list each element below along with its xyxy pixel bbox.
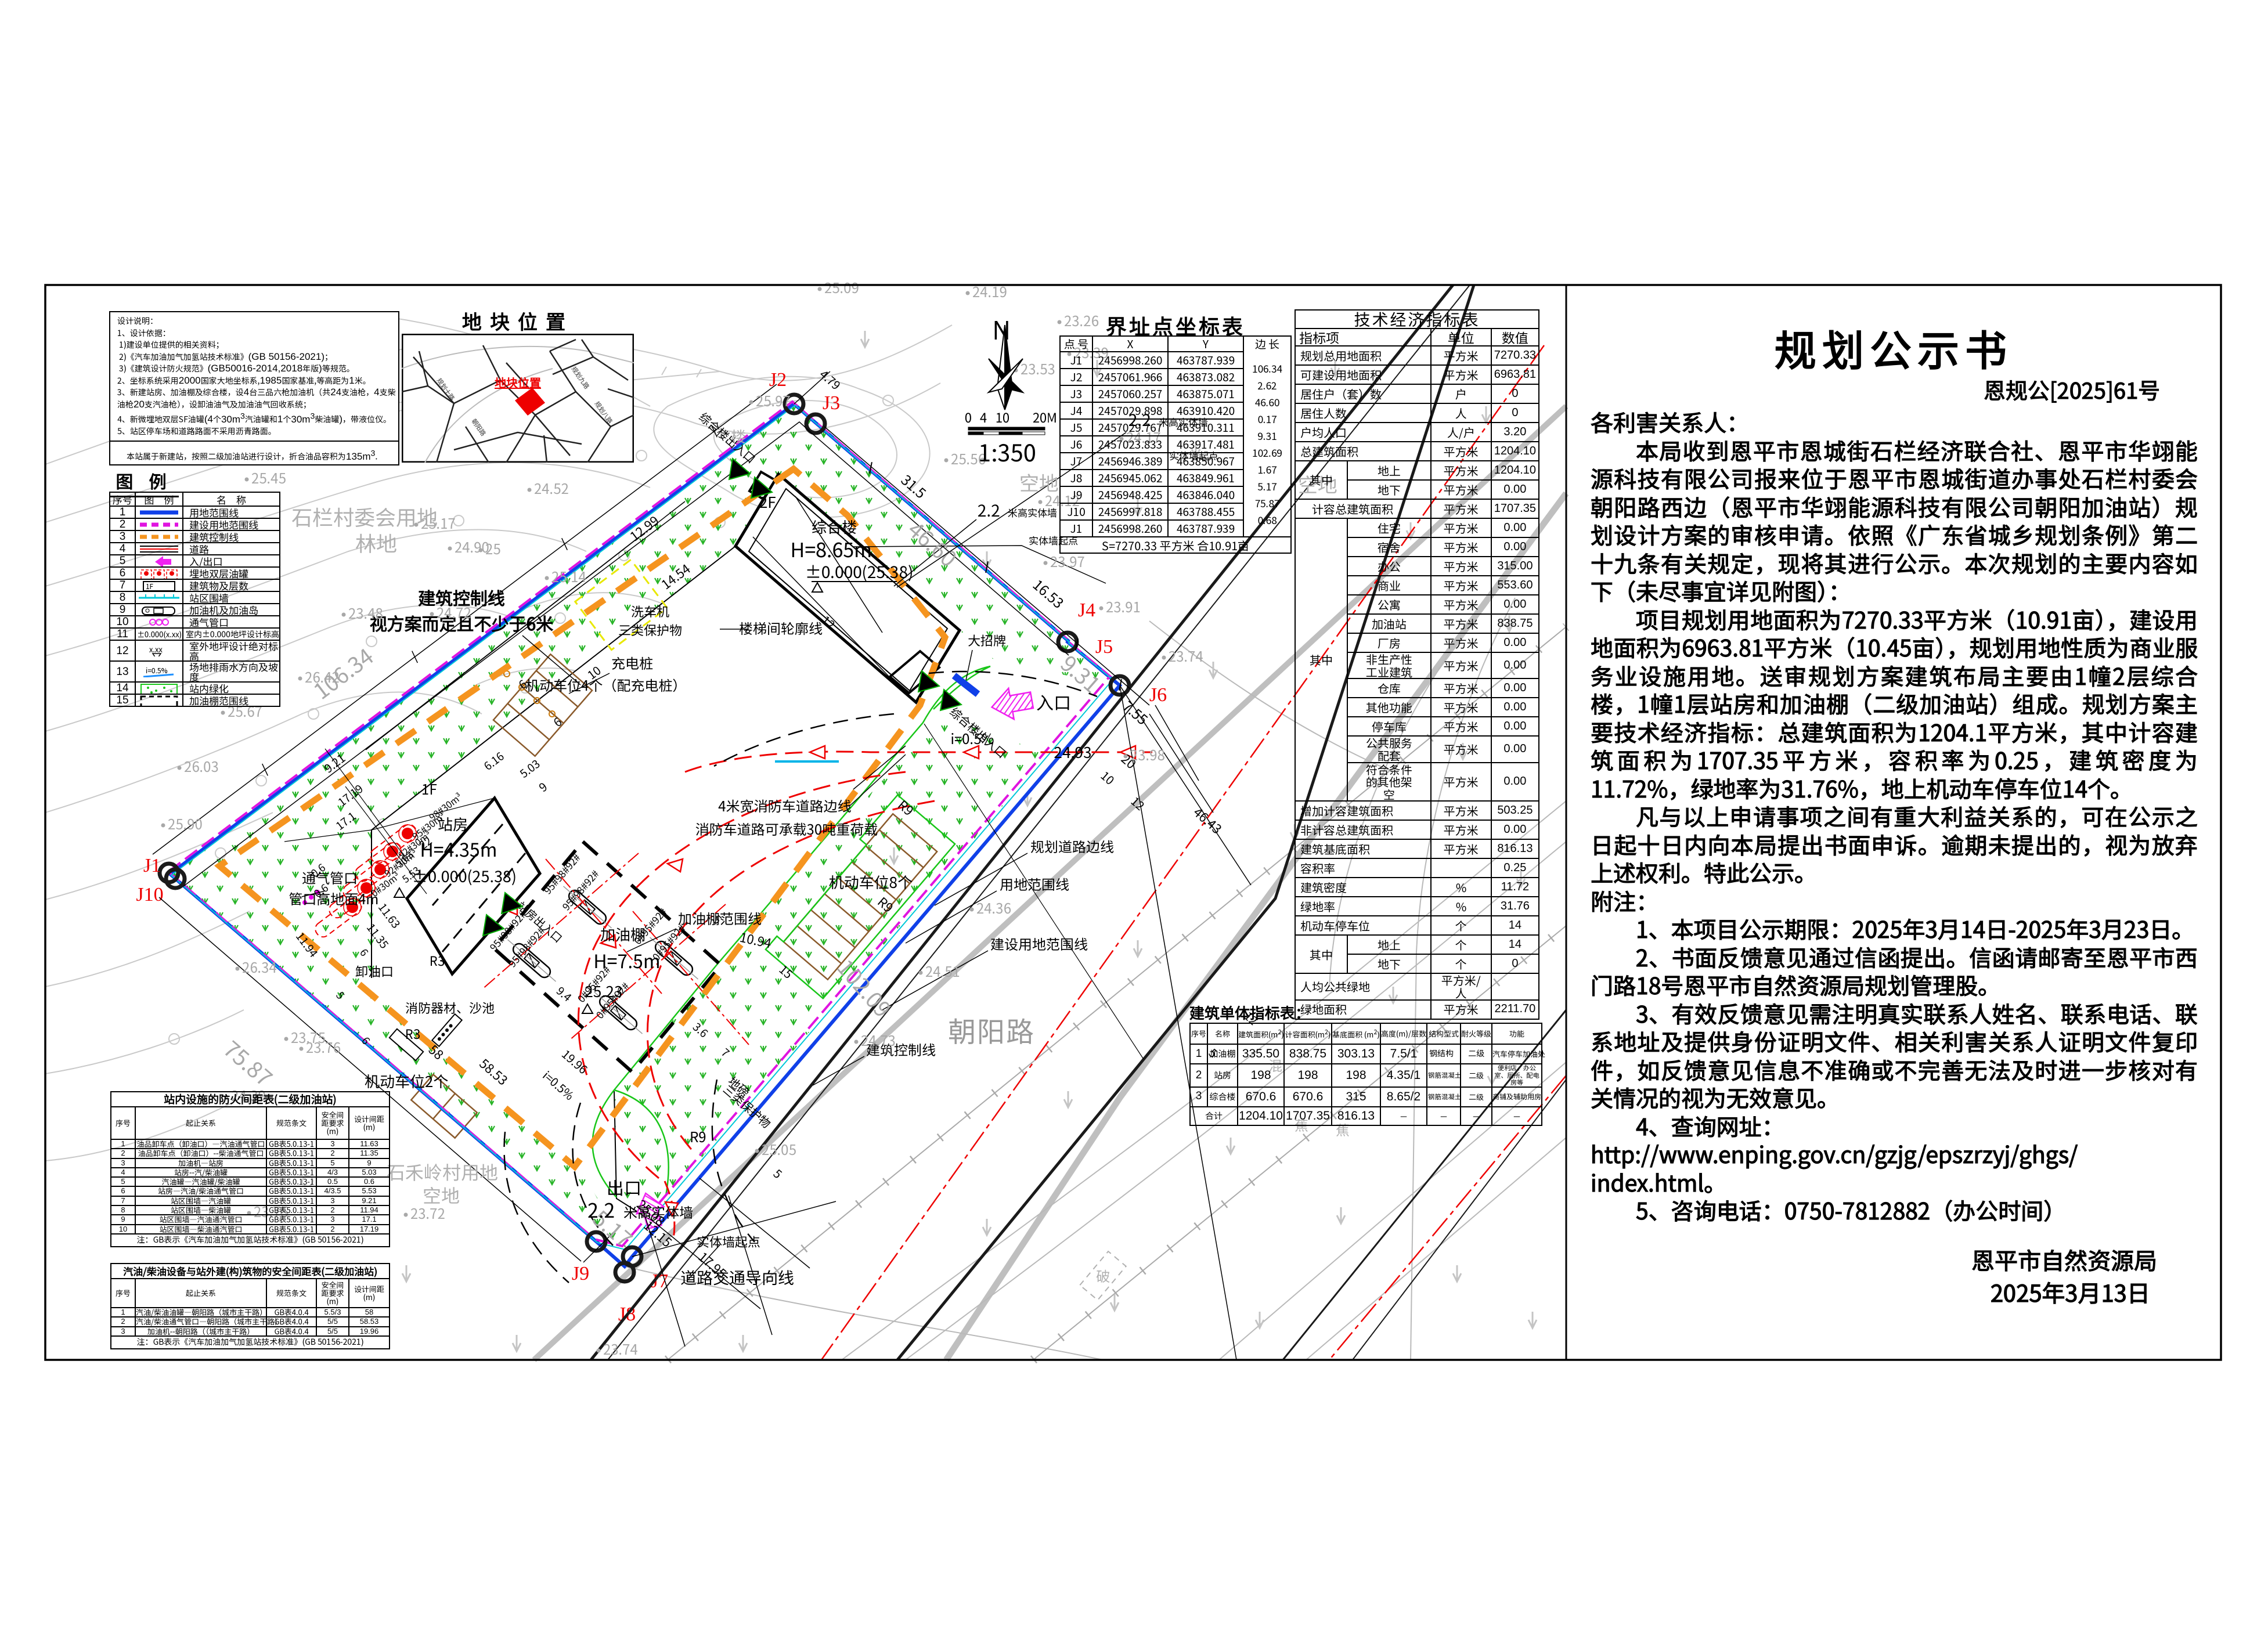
svg-text:米高实体墙: 米高实体墙 <box>623 1201 693 1222</box>
svg-text:23.74: 23.74 <box>1169 645 1203 666</box>
svg-text:道路交通导向线: 道路交通导向线 <box>680 1266 794 1289</box>
svg-text:24.36: 24.36 <box>976 897 1011 918</box>
svg-text:24.72: 24.72 <box>437 602 471 622</box>
svg-text:23.98: 23.98 <box>1130 744 1165 764</box>
svg-text:H=4.35m: H=4.35m <box>420 836 497 862</box>
svg-text:J9: J9 <box>572 1263 589 1284</box>
svg-text:N: N <box>992 310 1011 347</box>
svg-text:23.91: 23.91 <box>1106 596 1141 616</box>
svg-text:23.72: 23.72 <box>410 1203 445 1223</box>
svg-text:25: 25 <box>485 538 501 558</box>
svg-text:10: 10 <box>1098 767 1119 788</box>
svg-text:25.45: 25.45 <box>251 467 286 488</box>
svg-text:±0.000(x.xx): ±0.000(x.xx) <box>137 629 182 640</box>
svg-text:楼梯间轮廓线: 楼梯间轮廓线 <box>739 618 823 638</box>
svg-text:朝阳路: 朝阳路 <box>948 1009 1035 1050</box>
svg-text:J3: J3 <box>823 392 840 414</box>
svg-text:26.42: 26.42 <box>305 666 340 687</box>
svg-text:26.03: 26.03 <box>184 756 219 776</box>
svg-text:5: 5 <box>770 1165 786 1182</box>
svg-text:充电桩: 充电桩 <box>611 652 653 673</box>
svg-text:23.53: 23.53 <box>1021 358 1055 378</box>
svg-text:25.09: 25.09 <box>824 277 859 297</box>
svg-text:0: 0 <box>965 408 972 427</box>
svg-text:23.48: 23.48 <box>348 602 383 623</box>
svg-text:用地范围线: 用地范围线 <box>1000 873 1069 894</box>
svg-text:24.93: 24.93 <box>1054 741 1092 763</box>
svg-text:75.87: 75.87 <box>218 1033 280 1093</box>
svg-text:1:350: 1:350 <box>978 435 1036 468</box>
svg-text:R3: R3 <box>405 1024 420 1043</box>
svg-text:7.55: 7.55 <box>1119 696 1153 729</box>
svg-text:25.14: 25.14 <box>551 566 586 586</box>
svg-text:24.52: 24.52 <box>534 478 569 498</box>
svg-text:±0.000(25.38): ±0.000(25.38) <box>805 560 914 583</box>
svg-text:J1: J1 <box>143 855 161 876</box>
svg-text:2.2: 2.2 <box>587 1195 615 1223</box>
svg-text:建设用地范围线: 建设用地范围线 <box>990 933 1088 954</box>
svg-text:±0.000(25.38): ±0.000(25.38) <box>412 864 517 887</box>
svg-text:消防器材、沙池: 消防器材、沙池 <box>405 998 495 1017</box>
svg-text:管口高地面4m: 管口高地面4m <box>289 888 379 908</box>
svg-text:46.43: 46.43 <box>1190 803 1226 838</box>
svg-text:20M: 20M <box>1033 408 1057 427</box>
svg-text:通气管口: 通气管口 <box>302 867 358 887</box>
svg-text:林地: 林地 <box>355 528 397 558</box>
svg-text:1F: 1F <box>146 582 153 591</box>
svg-text:三类保护物: 三类保护物 <box>618 620 682 639</box>
svg-text:破: 破 <box>1096 1265 1110 1286</box>
svg-text:25.97: 25.97 <box>756 390 791 410</box>
svg-text:机动车位8个: 机动车位8个 <box>829 871 913 893</box>
svg-text:规划道路边线: 规划道路边线 <box>1030 836 1114 856</box>
svg-text:10: 10 <box>996 408 1009 427</box>
svg-text:入口: 入口 <box>1036 689 1071 714</box>
svg-text:J10: J10 <box>136 884 163 905</box>
svg-text:R3: R3 <box>430 951 445 970</box>
svg-text:站房: 站房 <box>438 813 468 835</box>
svg-text:25.17: 25.17 <box>421 512 456 533</box>
svg-text:1F: 1F <box>421 778 437 799</box>
svg-text:2.2: 2.2 <box>978 499 1000 522</box>
svg-text:楼: 楼 <box>731 425 746 447</box>
svg-text:4: 4 <box>980 408 987 427</box>
svg-text:洗车机: 洗车机 <box>631 602 670 620</box>
svg-text:26.34: 26.34 <box>242 956 277 977</box>
svg-text:i=0.5%: i=0.5% <box>146 666 168 676</box>
svg-text:J2: J2 <box>769 369 787 391</box>
svg-text:消防车道路可承载30吨重荷载: 消防车道路可承载30吨重荷载 <box>695 818 878 839</box>
svg-text:4米宽消防车道路边线: 4米宽消防车道路边线 <box>718 795 851 815</box>
svg-text:24.73: 24.73 <box>861 1030 896 1050</box>
svg-text:24.51: 24.51 <box>925 961 960 981</box>
svg-text:4.79: 4.79 <box>816 366 844 393</box>
svg-text:23.74: 23.74 <box>603 1338 638 1359</box>
svg-text:J5: J5 <box>1095 636 1113 658</box>
svg-text:24.90: 24.90 <box>455 536 489 557</box>
svg-text:加油棚范围线: 加油棚范围线 <box>678 908 762 928</box>
svg-text:23.97: 23.97 <box>1050 551 1085 571</box>
svg-text:大招牌: 大招牌 <box>968 631 1006 649</box>
svg-text:实体墙起点: 实体墙起点 <box>697 1232 760 1251</box>
svg-text:J4: J4 <box>1078 600 1095 621</box>
svg-text:地块位置: 地块位置 <box>495 374 541 391</box>
svg-text:J6: J6 <box>1149 684 1167 706</box>
svg-text:机动车位4个（配充电桩）: 机动车位4个（配充电桩） <box>525 674 686 695</box>
svg-text:H=8.65m: H=8.65m <box>790 535 872 563</box>
svg-text:R9: R9 <box>690 1126 706 1146</box>
svg-text:23.75: 23.75 <box>291 1027 326 1047</box>
svg-text:16.53: 16.53 <box>1029 574 1069 612</box>
svg-text:25.90: 25.90 <box>168 813 203 833</box>
svg-text:机动车位2个: 机动车位2个 <box>365 1070 448 1092</box>
svg-text:25.05: 25.05 <box>762 1139 796 1159</box>
svg-text:卸油口: 卸油口 <box>355 962 394 980</box>
